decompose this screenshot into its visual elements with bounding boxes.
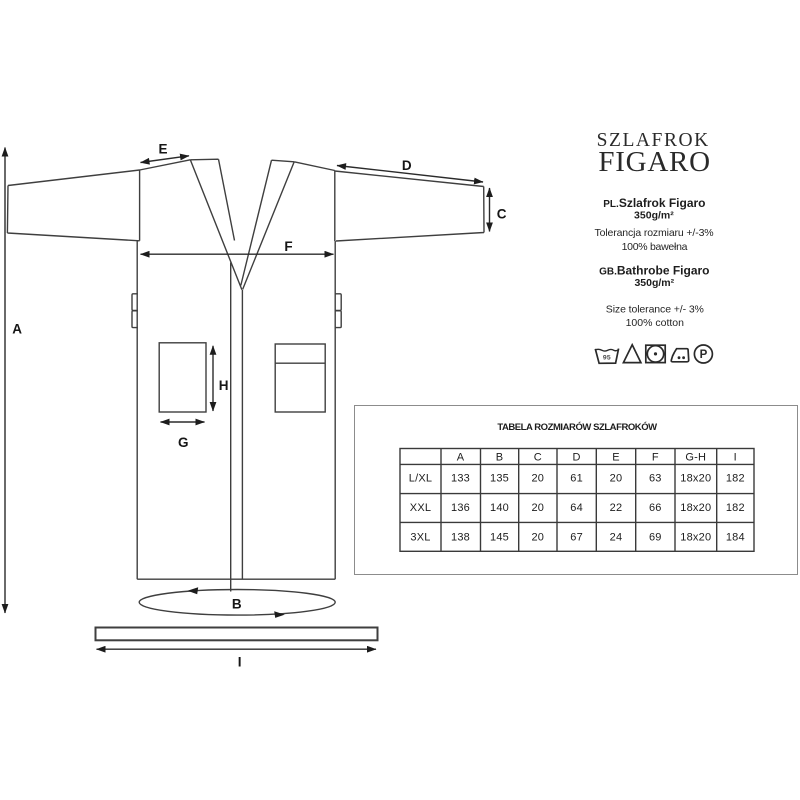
- svg-text:24: 24: [610, 531, 623, 543]
- svg-text:135: 135: [490, 473, 509, 485]
- svg-text:A: A: [457, 451, 465, 463]
- svg-text:20: 20: [531, 473, 544, 485]
- svg-text:133: 133: [451, 473, 470, 485]
- svg-text:E: E: [158, 142, 167, 157]
- svg-text:D: D: [402, 158, 412, 173]
- svg-text:FIGARO: FIGARO: [598, 146, 710, 178]
- svg-text:G: G: [178, 435, 189, 450]
- svg-text:67: 67: [570, 531, 583, 543]
- svg-text:A: A: [12, 321, 22, 336]
- svg-text:182: 182: [726, 502, 745, 514]
- svg-text:138: 138: [451, 531, 470, 543]
- svg-text:Size tolerance +/- 3%: Size tolerance +/- 3%: [606, 304, 704, 316]
- svg-text:95: 95: [603, 354, 611, 361]
- svg-text:182: 182: [726, 473, 745, 485]
- svg-text:18x20: 18x20: [680, 502, 711, 514]
- svg-text:20: 20: [531, 531, 544, 543]
- svg-text:145: 145: [490, 531, 509, 543]
- svg-text:F: F: [652, 451, 659, 463]
- svg-text:20: 20: [531, 502, 544, 514]
- svg-text:C: C: [534, 451, 542, 463]
- svg-text:B: B: [232, 597, 242, 612]
- svg-text:184: 184: [726, 531, 745, 543]
- svg-text:G-H: G-H: [685, 451, 706, 463]
- svg-text:66: 66: [649, 502, 662, 514]
- svg-text:I: I: [238, 655, 242, 670]
- svg-text:XXL: XXL: [410, 502, 431, 514]
- svg-text:100% bawełna: 100% bawełna: [622, 241, 688, 253]
- svg-text:22: 22: [610, 502, 623, 514]
- svg-text:18x20: 18x20: [680, 531, 711, 543]
- svg-text:61: 61: [570, 473, 583, 485]
- svg-text:18x20: 18x20: [680, 473, 711, 485]
- svg-text:P: P: [700, 349, 708, 361]
- svg-text:D: D: [573, 451, 581, 463]
- svg-text:E: E: [612, 451, 620, 463]
- svg-text:63: 63: [649, 473, 662, 485]
- svg-text:F: F: [284, 239, 292, 254]
- svg-text:I: I: [734, 451, 737, 463]
- svg-text:20: 20: [610, 473, 623, 485]
- svg-text:C: C: [497, 207, 507, 222]
- svg-text:140: 140: [490, 502, 509, 514]
- svg-text:B: B: [496, 451, 504, 463]
- svg-text:L/XL: L/XL: [409, 473, 432, 485]
- svg-text:3XL: 3XL: [410, 531, 430, 543]
- svg-text:350g/m²: 350g/m²: [634, 209, 674, 221]
- svg-text:136: 136: [451, 502, 470, 514]
- svg-text:69: 69: [649, 531, 662, 543]
- svg-text:GB.Bathrobe Figaro: GB.Bathrobe Figaro: [599, 264, 709, 278]
- svg-text:64: 64: [570, 502, 583, 514]
- svg-text:PL.Szlafrok Figaro: PL.Szlafrok Figaro: [603, 196, 705, 210]
- svg-text:Tolerancja rozmiaru +/-3%: Tolerancja rozmiaru +/-3%: [594, 227, 713, 239]
- svg-text:H: H: [219, 378, 229, 393]
- svg-text:350g/m²: 350g/m²: [634, 277, 674, 289]
- svg-text:TABELA ROZMIARÓW SZLAFROKÓW: TABELA ROZMIARÓW SZLAFROKÓW: [497, 421, 657, 433]
- svg-text:100% cotton: 100% cotton: [626, 317, 685, 329]
